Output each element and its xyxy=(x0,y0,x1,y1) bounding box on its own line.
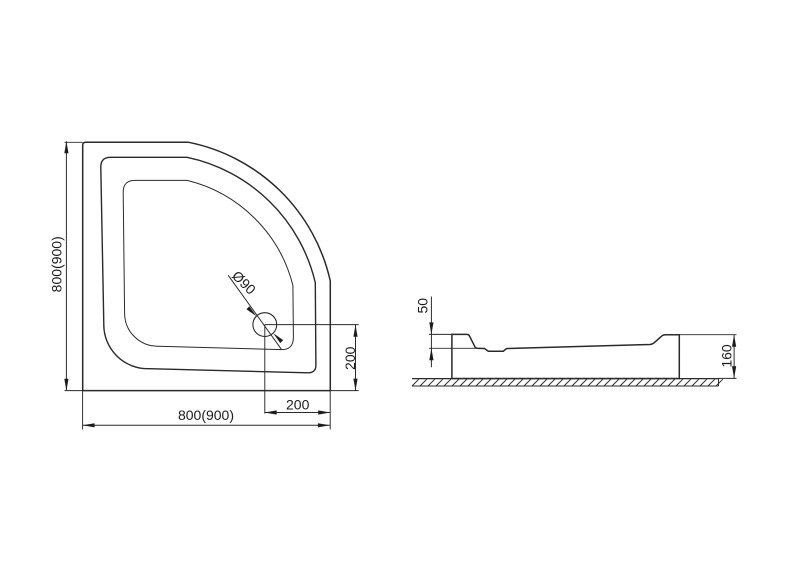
svg-text:160: 160 xyxy=(719,344,735,368)
svg-text:200: 200 xyxy=(342,346,358,370)
svg-text:Ø90: Ø90 xyxy=(229,267,259,297)
svg-text:800(900): 800(900) xyxy=(48,236,64,292)
svg-text:200: 200 xyxy=(286,397,310,413)
svg-text:800(900): 800(900) xyxy=(178,407,234,423)
svg-text:50: 50 xyxy=(415,298,431,314)
